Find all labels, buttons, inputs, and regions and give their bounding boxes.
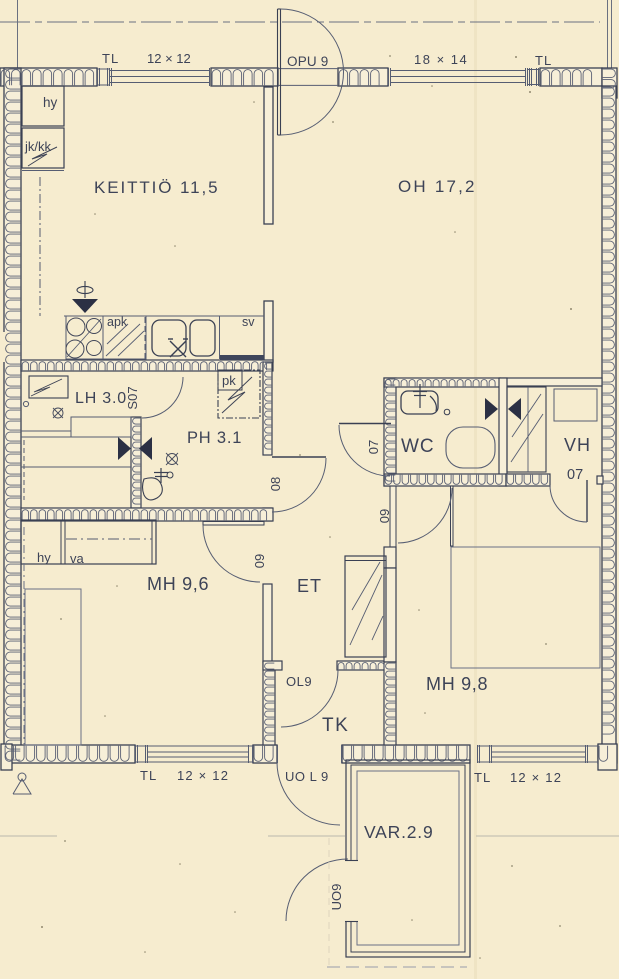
svg-text:va: va xyxy=(70,551,85,566)
svg-text:MH 9,8: MH 9,8 xyxy=(426,674,488,694)
svg-text:hy: hy xyxy=(37,550,51,565)
svg-text:07: 07 xyxy=(366,440,381,454)
svg-text:pk: pk xyxy=(222,373,236,388)
svg-text:VH: VH xyxy=(564,435,591,455)
svg-text:apk: apk xyxy=(107,315,128,329)
svg-text:ET: ET xyxy=(297,576,322,596)
svg-text:PH 3.1: PH 3.1 xyxy=(187,429,242,447)
svg-text:TL: TL xyxy=(140,768,157,783)
svg-text:hy: hy xyxy=(43,95,58,110)
svg-text:TL: TL xyxy=(102,51,119,66)
svg-text:jk/kk: jk/kk xyxy=(24,139,52,154)
svg-text:12 × 12: 12 × 12 xyxy=(147,51,191,66)
svg-text:OL9: OL9 xyxy=(286,674,312,689)
svg-text:09: 09 xyxy=(377,509,392,523)
svg-text:UO L 9: UO L 9 xyxy=(285,769,329,784)
svg-text:S07: S07 xyxy=(125,386,140,409)
svg-text:TL: TL xyxy=(474,770,491,785)
svg-text:09: 09 xyxy=(252,554,267,568)
svg-text:WC: WC xyxy=(401,436,435,457)
svg-text:sv: sv xyxy=(242,315,255,329)
svg-text:12 × 12: 12 × 12 xyxy=(177,768,229,783)
svg-text:TK: TK xyxy=(322,715,349,736)
svg-text:12 × 12: 12 × 12 xyxy=(510,770,562,785)
svg-text:KEITTIÖ 11,5: KEITTIÖ 11,5 xyxy=(94,178,219,197)
svg-text:OH 17,2: OH 17,2 xyxy=(398,177,477,196)
svg-text:18 × 14: 18 × 14 xyxy=(414,52,468,67)
svg-text:08: 08 xyxy=(268,477,283,491)
svg-text:UO9: UO9 xyxy=(329,884,344,911)
svg-text:VAR.2.9: VAR.2.9 xyxy=(364,822,433,842)
svg-text:TL: TL xyxy=(535,53,552,68)
svg-text:MH 9,6: MH 9,6 xyxy=(147,574,209,594)
svg-text:LH 3.0: LH 3.0 xyxy=(75,390,127,407)
svg-text:07: 07 xyxy=(567,467,583,483)
svg-text:OPU 9: OPU 9 xyxy=(287,54,329,69)
